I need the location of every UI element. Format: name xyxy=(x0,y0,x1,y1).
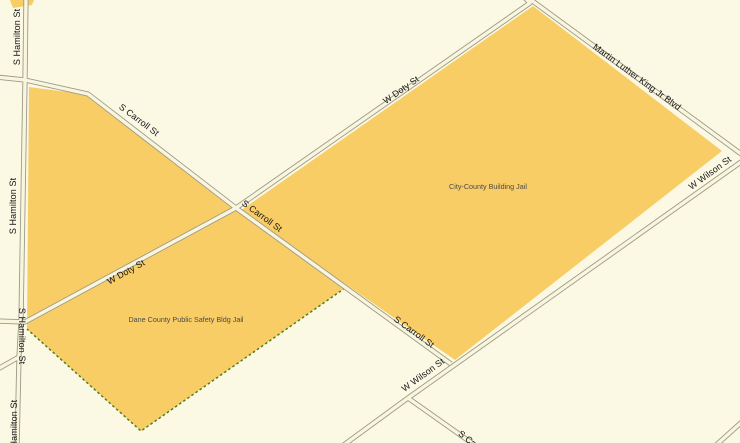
street-label-s-hamilton-st-middle: S Hamilton St xyxy=(8,177,18,234)
street-label-s-hamilton-st-lower: S Hamilton St xyxy=(17,308,27,365)
street-label-s-hamilton-st-bottom: S Hamilton St xyxy=(9,399,19,443)
place-label-city-county-building-jail: City-County Building Jail xyxy=(449,182,527,191)
place-label-dane-county-public-safety-bldg-jail: Dane County Public Safety Bldg Jail xyxy=(128,315,243,324)
street-label-s-hamilton-st-upper: S Hamilton St xyxy=(12,8,22,65)
map-canvas[interactable]: S Hamilton StS Hamilton StS Hamilton StS… xyxy=(0,0,740,443)
map-svg: S Hamilton StS Hamilton StS Hamilton StS… xyxy=(0,0,740,443)
